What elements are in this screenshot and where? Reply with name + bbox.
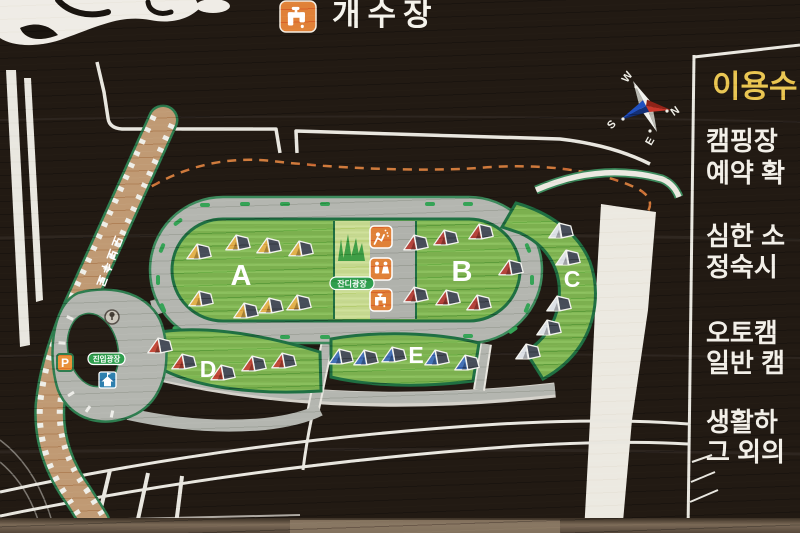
top-facility: 개수장	[280, 0, 439, 32]
faucet-icon	[370, 289, 392, 311]
rule-line: 일반 캠	[706, 348, 785, 378]
map-canvas: 개수장	[0, 0, 800, 533]
main-camp-oval	[150, 197, 542, 343]
rule-line: 그 외의	[706, 437, 785, 467]
rule-line: 예약 확	[706, 158, 785, 188]
top-facility-label: 개수장	[332, 0, 439, 32]
lawn-plaza-panel	[334, 221, 370, 319]
rules-panel: 이용수 캠핑장 예약 확 심한 소 정숙시 오토캠 일반 캠 생활하 그 외의	[688, 45, 800, 533]
rule-line: 심한 소	[706, 221, 785, 251]
zone-a-label: A	[231, 260, 252, 292]
parking-icon: P	[57, 354, 73, 371]
rule-line: 오토캠	[706, 318, 778, 348]
tent-icon	[537, 320, 561, 335]
topleft-illustration	[0, 0, 230, 45]
entry-plaza-badge: 진입광장	[88, 353, 125, 365]
rule-line: 정숙시	[706, 252, 778, 282]
zone-b-label: B	[452, 256, 473, 288]
rule-line: 캠핑장	[706, 126, 778, 156]
compass-south: S	[605, 118, 619, 132]
compass-east: E	[643, 135, 657, 147]
facility-icons	[370, 226, 392, 311]
campground-map-sign: 개수장	[0, 0, 800, 533]
compass-north: N	[669, 104, 682, 118]
left-road-bars	[6, 70, 43, 347]
lawn-plaza-label: 잔디광장	[337, 279, 367, 289]
house-icon	[99, 372, 116, 388]
rule-line: 생활하	[706, 407, 778, 437]
lawn-plaza-badge: 잔디광장	[330, 277, 374, 290]
entry-plaza-label: 진입광장	[93, 354, 121, 364]
roundabout-icon	[105, 310, 119, 324]
tent-icon	[547, 296, 571, 311]
tent-icon	[516, 344, 540, 359]
compass-rose: W N S E	[605, 69, 682, 148]
zone-e-label: E	[408, 342, 423, 368]
rules-title: 이용수	[712, 69, 798, 104]
zone-d-label: D	[200, 356, 217, 382]
restroom-icon	[370, 258, 392, 280]
sign-bottom-frame-highlight	[290, 520, 560, 533]
compass-west: W	[620, 69, 636, 85]
parking-label: P	[61, 356, 69, 370]
shower-icon	[370, 226, 392, 248]
upper-roads	[97, 62, 650, 164]
zone-c-label: C	[564, 266, 581, 292]
